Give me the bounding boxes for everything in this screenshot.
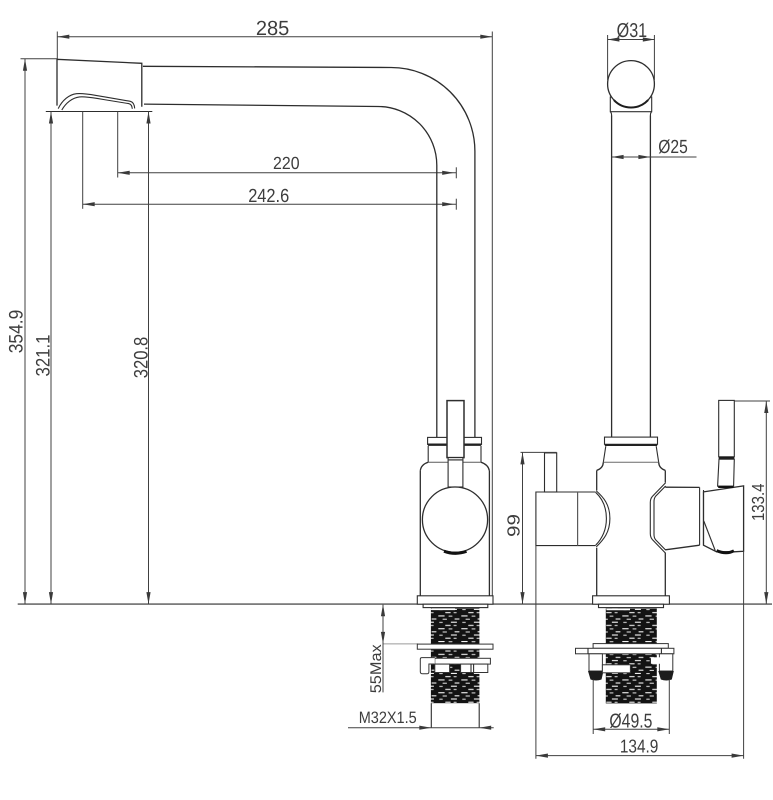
svg-text:320.8: 320.8 xyxy=(131,337,153,379)
svg-text:99: 99 xyxy=(504,514,524,537)
svg-text:133.4: 133.4 xyxy=(748,483,768,521)
svg-text:55Max: 55Max xyxy=(368,644,385,693)
svg-text:321.1: 321.1 xyxy=(33,335,55,377)
svg-text:134.9: 134.9 xyxy=(620,736,659,757)
svg-text:220: 220 xyxy=(273,153,300,173)
svg-text:285: 285 xyxy=(256,17,290,40)
svg-text:242.6: 242.6 xyxy=(248,186,289,207)
svg-text:M32X1.5: M32X1.5 xyxy=(359,709,417,727)
svg-text:354.9: 354.9 xyxy=(6,310,28,354)
svg-text:Ø25: Ø25 xyxy=(658,137,688,158)
svg-text:Ø31: Ø31 xyxy=(617,20,648,42)
svg-text:Ø49.5: Ø49.5 xyxy=(609,710,652,732)
